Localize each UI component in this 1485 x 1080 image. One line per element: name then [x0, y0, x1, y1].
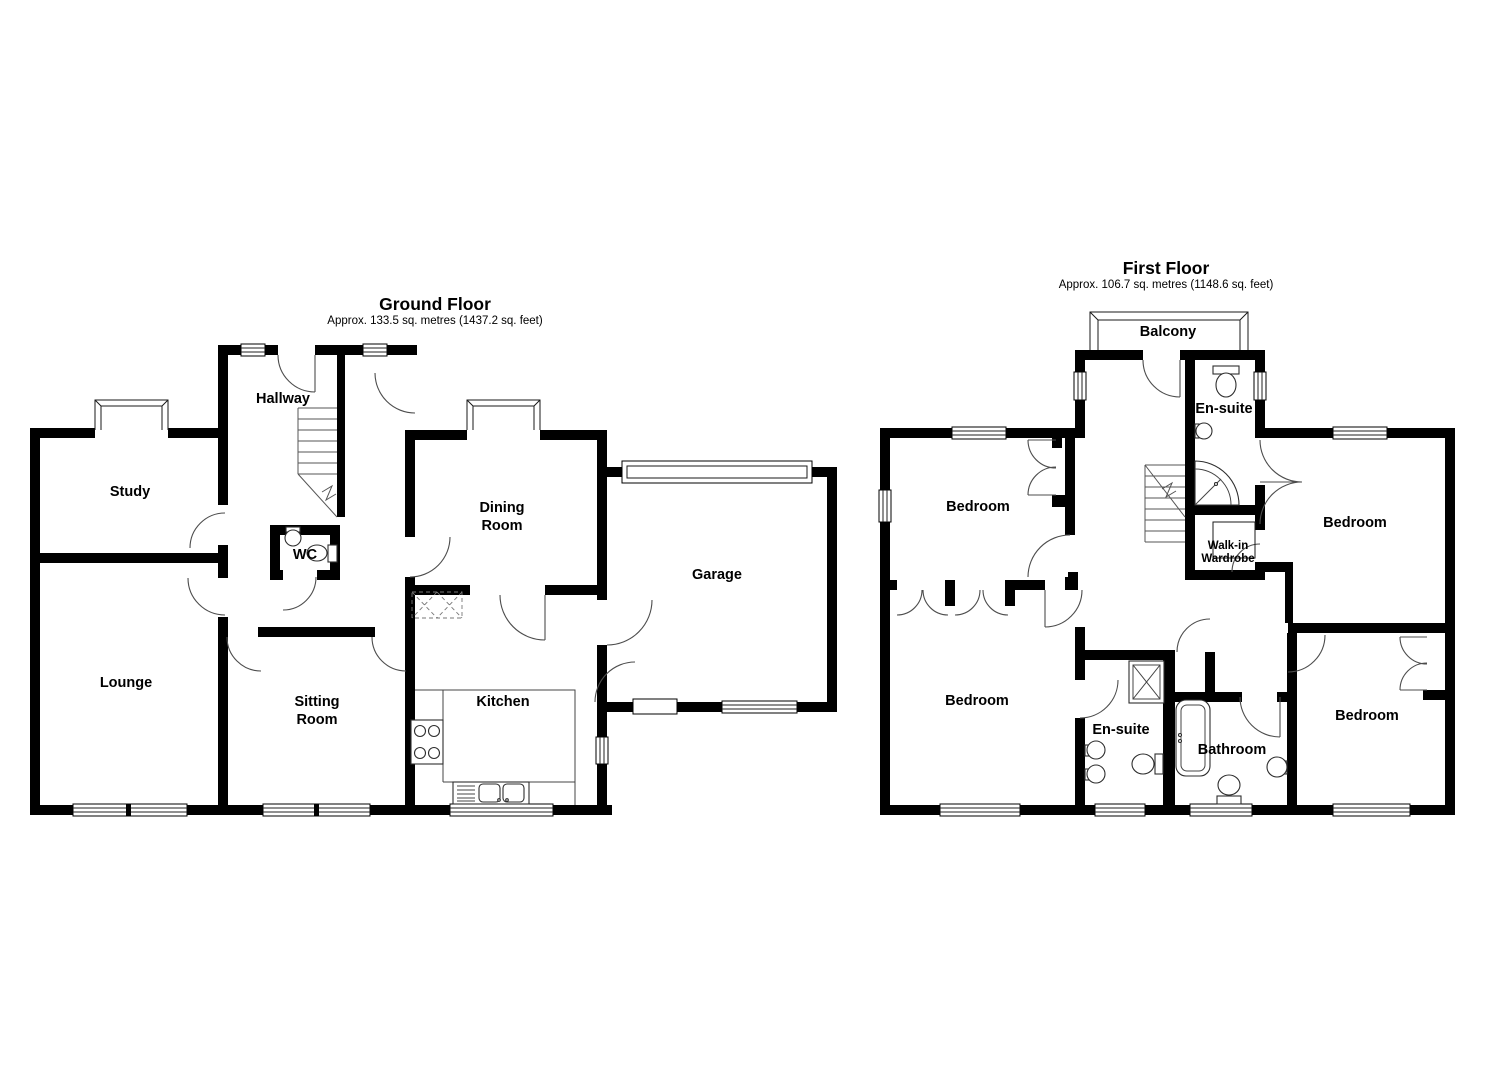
hallway-window-left [241, 344, 265, 356]
room-label-study: Study [110, 484, 150, 500]
room-label-dining-line1: Dining [479, 500, 524, 516]
ensuite-bottom-shower-fixture [1129, 661, 1164, 703]
ensuite-bottom-sinks-fixture [1085, 741, 1105, 783]
room-label-ensuite-bottom: En-suite [1092, 722, 1149, 738]
first-floor-windows [879, 312, 1410, 816]
bedroom-tr-window [1333, 427, 1387, 439]
kitchen-side-window [596, 737, 608, 764]
bedroom-bl-window [940, 804, 1020, 816]
room-label-sitting-line1: Sitting [294, 694, 339, 710]
hallway-window-right [363, 344, 387, 356]
kitchen-sink-fixture [453, 782, 529, 804]
ensuite-top-window [1254, 372, 1266, 400]
kitchen-window [450, 804, 553, 816]
garage-door-leaf [633, 699, 677, 714]
room-label-dining-line2: Room [481, 518, 522, 534]
understairs-storage-hatch [412, 592, 462, 618]
ground-floor-plan: Ground Floor Approx. 133.5 sq. metres (1… [30, 294, 837, 816]
room-label-bedroom-bottom-right: Bedroom [1335, 708, 1399, 724]
ground-floor-title: Ground Floor [379, 294, 491, 314]
first-floor-area: Approx. 106.7 sq. metres (1148.6 sq. fee… [1059, 279, 1274, 291]
sitting-room-window [263, 804, 370, 816]
landing-window [1074, 372, 1086, 400]
room-label-kitchen: Kitchen [476, 694, 529, 710]
first-floor-stairs [1145, 465, 1185, 542]
study-bay-window [95, 400, 168, 430]
first-floor-walls [880, 350, 1455, 815]
ensuite-bottom-toilet-fixture [1132, 754, 1163, 774]
lounge-window [73, 804, 187, 816]
ground-floor-area: Approx. 133.5 sq. metres (1437.2 sq. fee… [327, 315, 543, 327]
room-label-sitting-line2: Room [296, 712, 337, 728]
room-label-wc: WC [293, 547, 318, 563]
garage-window [722, 701, 797, 713]
floorplan-drawing: Ground Floor Approx. 133.5 sq. metres (1… [0, 0, 1485, 1080]
garage-vehicle-door [622, 461, 812, 483]
bathroom-bath-fixture [1176, 700, 1210, 776]
bedroom-br-window [1333, 804, 1410, 816]
dining-bay-window [467, 400, 540, 430]
room-label-bathroom: Bathroom [1198, 742, 1266, 758]
room-label-lounge: Lounge [100, 675, 152, 691]
bathroom-toilet-fixture [1217, 775, 1241, 804]
room-label-hallway: Hallway [256, 391, 310, 407]
bedroom-tl-window [952, 427, 1006, 439]
ensuite-top-sink-fixture [1195, 423, 1212, 439]
ensuite-top-shower-fixture [1195, 461, 1239, 505]
room-label-wardrobe-line2: Wardrobe [1201, 553, 1254, 565]
room-label-bedroom-bottom-left: Bedroom [945, 693, 1009, 709]
room-label-bedroom-top-left: Bedroom [946, 499, 1010, 515]
first-floor-title: First Floor [1123, 258, 1210, 278]
room-label-ensuite-top: En-suite [1195, 401, 1252, 417]
bathroom-sink-fixture [1267, 757, 1287, 777]
room-label-bedroom-top-right: Bedroom [1323, 515, 1387, 531]
ensuite-bottom-window [1095, 804, 1145, 816]
kitchen-stove-fixture [411, 720, 443, 764]
room-label-wardrobe-line1: Walk-in [1208, 540, 1248, 552]
room-label-garage: Garage [692, 567, 742, 583]
bathroom-window [1190, 804, 1252, 816]
ground-floor-stairs [298, 408, 337, 517]
room-label-balcony: Balcony [1140, 324, 1196, 340]
wc-sink-fixture [285, 527, 301, 546]
first-floor-plan: First Floor Approx. 106.7 sq. metres (11… [879, 258, 1455, 816]
floorplan-page: Ground Floor Approx. 133.5 sq. metres (1… [0, 0, 1485, 1080]
ensuite-top-toilet-fixture [1213, 366, 1239, 397]
left-wall-window [879, 490, 891, 522]
ground-floor-labels: Ground Floor Approx. 133.5 sq. metres (1… [100, 294, 742, 728]
ground-floor-fixtures [285, 527, 575, 805]
